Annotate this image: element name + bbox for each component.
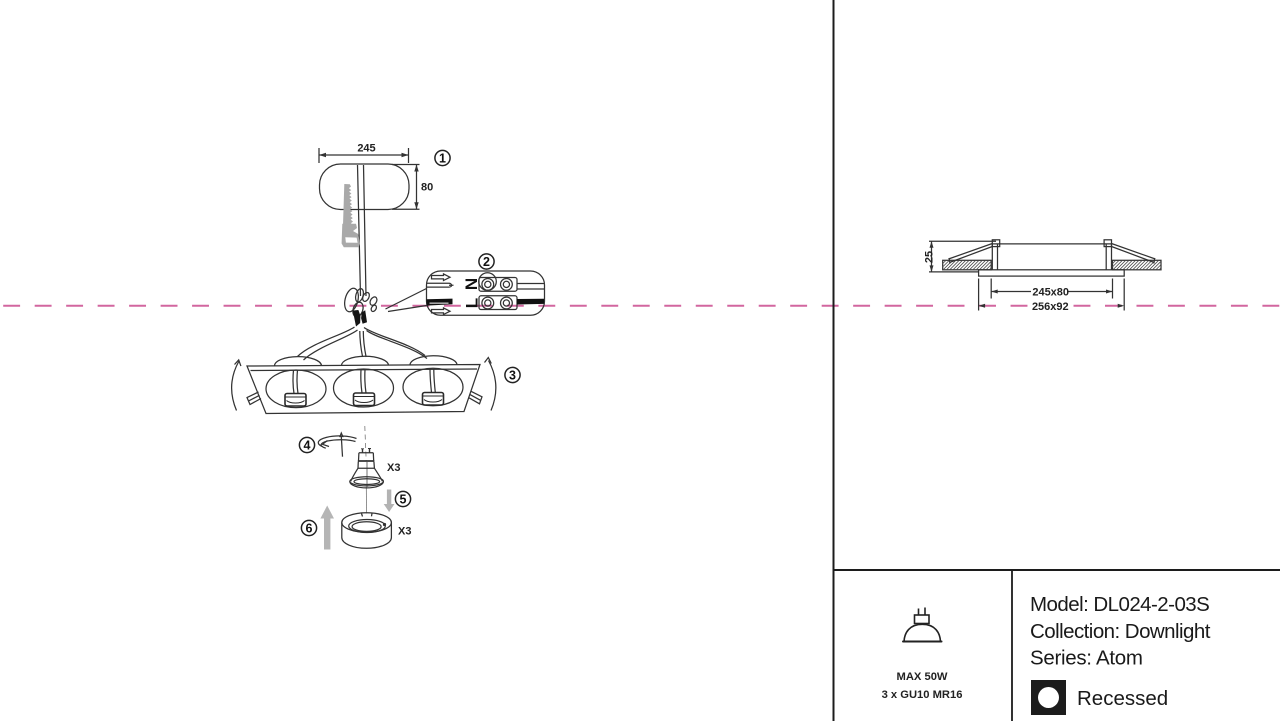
- svg-text:245: 245: [357, 142, 375, 154]
- svg-text:80: 80: [421, 182, 433, 194]
- svg-text:2: 2: [483, 255, 490, 269]
- svg-text:3: 3: [509, 369, 516, 383]
- svg-text:Recessed: Recessed: [1077, 687, 1168, 710]
- svg-text:Series: Atom: Series: Atom: [1030, 647, 1143, 670]
- svg-text:6: 6: [306, 522, 313, 536]
- svg-text:256x92: 256x92: [1032, 301, 1069, 313]
- svg-text:N: N: [462, 278, 481, 290]
- svg-text:1: 1: [439, 152, 446, 166]
- svg-text:Model: DL024-2-03S: Model: DL024-2-03S: [1030, 593, 1209, 616]
- svg-text:5: 5: [400, 493, 407, 507]
- svg-text:X3: X3: [398, 526, 411, 538]
- svg-text:Collection: Downlight: Collection: Downlight: [1030, 620, 1211, 643]
- svg-text:MAX 50W: MAX 50W: [897, 671, 948, 683]
- svg-text:25: 25: [924, 251, 936, 263]
- svg-text:4: 4: [304, 439, 311, 453]
- svg-text:3 x GU10 MR16: 3 x GU10 MR16: [882, 689, 963, 701]
- svg-text:X3: X3: [387, 462, 400, 474]
- svg-text:245x80: 245x80: [1032, 287, 1069, 299]
